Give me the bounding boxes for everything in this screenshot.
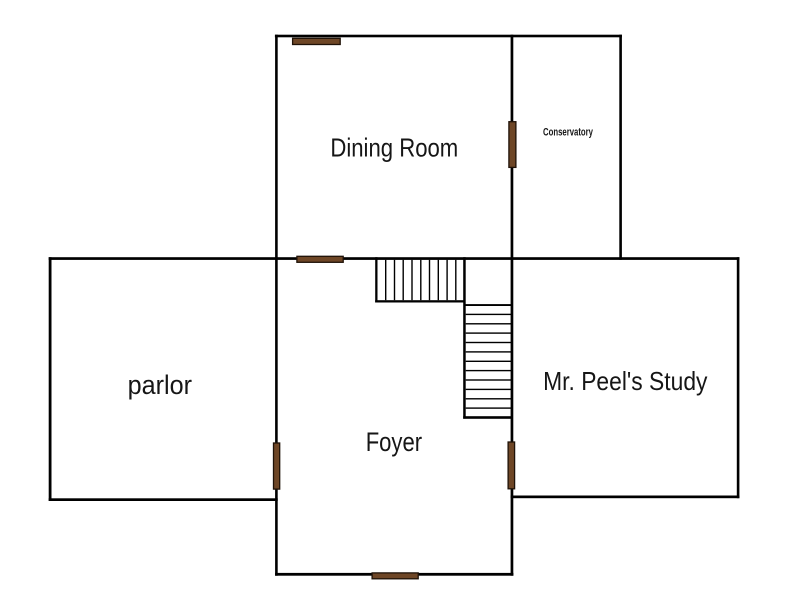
svg-text:Mr. Peel's Study: Mr. Peel's Study — [543, 366, 707, 396]
svg-text:Foyer: Foyer — [366, 427, 423, 457]
svg-text:parlor: parlor — [128, 370, 193, 400]
svg-text:Dining Room: Dining Room — [330, 132, 458, 162]
svg-text:Conservatory: Conservatory — [543, 127, 593, 139]
